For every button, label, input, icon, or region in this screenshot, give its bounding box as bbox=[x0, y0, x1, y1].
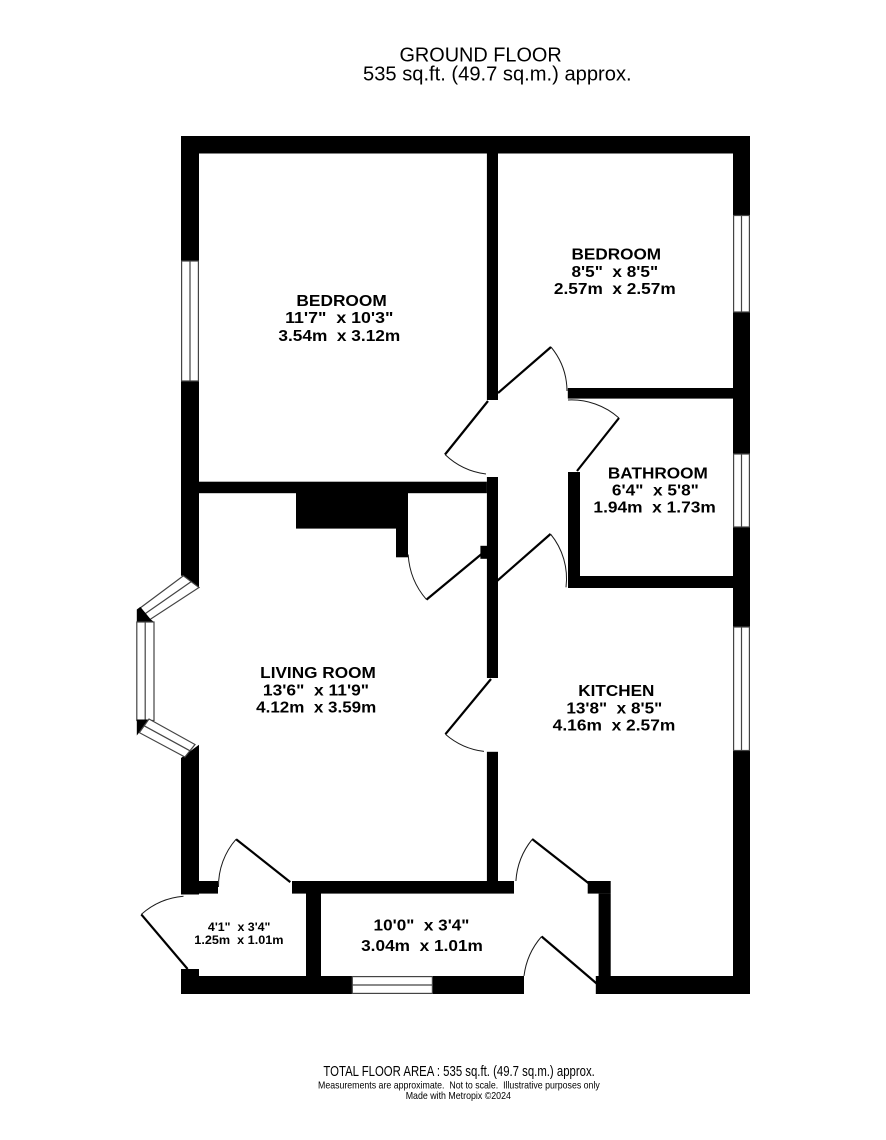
svg-text:3.04m x 1.01m: 3.04m x 1.01m bbox=[361, 938, 483, 955]
svg-text:1.94m x 1.73m: 1.94m x 1.73m bbox=[593, 500, 715, 517]
svg-text:KITCHEN: KITCHEN bbox=[578, 683, 654, 700]
svg-text:TOTAL FLOOR AREA : 535 sq.ft.: TOTAL FLOOR AREA : 535 sq.ft. (49.7 sq.m… bbox=[323, 1064, 594, 1080]
svg-text:11'7" x 10'3": 11'7" x 10'3" bbox=[285, 310, 393, 327]
svg-text:13'6" x 11'9": 13'6" x 11'9" bbox=[263, 682, 369, 699]
svg-text:4.12m x 3.59m: 4.12m x 3.59m bbox=[256, 700, 376, 717]
svg-text:535 sq.ft. (49.7 sq.m.) approx: 535 sq.ft. (49.7 sq.m.) approx. bbox=[363, 64, 632, 86]
svg-text:13'8" x 8'5": 13'8" x 8'5" bbox=[566, 700, 662, 717]
svg-text:6'4" x 5'8": 6'4" x 5'8" bbox=[612, 483, 699, 500]
svg-text:4'1" x 3'4": 4'1" x 3'4" bbox=[208, 920, 271, 934]
svg-text:2.57m x 2.57m: 2.57m x 2.57m bbox=[554, 281, 676, 298]
svg-text:Made with Metropix ©2024: Made with Metropix ©2024 bbox=[406, 1090, 511, 1102]
svg-text:10'0" x 3'4": 10'0" x 3'4" bbox=[374, 918, 470, 935]
svg-text:8'5" x 8'5": 8'5" x 8'5" bbox=[572, 264, 659, 281]
svg-text:3.54m x 3.12m: 3.54m x 3.12m bbox=[278, 328, 400, 345]
svg-text:BEDROOM: BEDROOM bbox=[296, 293, 386, 310]
svg-text:1.25m x 1.01m: 1.25m x 1.01m bbox=[194, 933, 283, 947]
svg-text:BEDROOM: BEDROOM bbox=[572, 246, 662, 263]
svg-text:BATHROOM: BATHROOM bbox=[608, 466, 708, 483]
svg-text:LIVING ROOM: LIVING ROOM bbox=[260, 665, 376, 682]
svg-text:4.16m x 2.57m: 4.16m x 2.57m bbox=[553, 718, 676, 735]
